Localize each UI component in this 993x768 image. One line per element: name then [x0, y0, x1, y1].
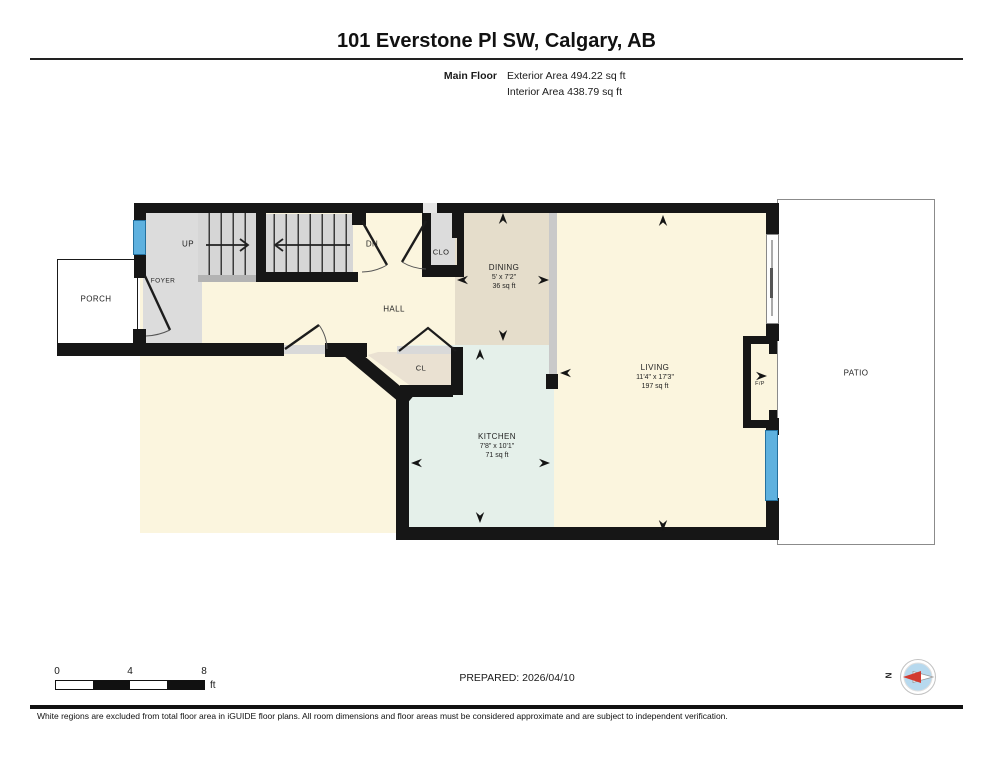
side-door-sill [284, 345, 325, 354]
stairs-up [198, 210, 256, 275]
floor-label: Main Floor [0, 70, 497, 82]
dining-area: 36 sq ft [489, 282, 519, 292]
fireplace-label: F/P [755, 381, 765, 387]
wall-kitchen-left [396, 390, 409, 537]
kitchen-area: 71 sq ft [478, 451, 516, 461]
top-wall-window [423, 203, 437, 213]
fireplace-stub-bottom [769, 410, 777, 420]
kitchen-label: KITCHEN 7'8" x 10'1" 71 sq ft [478, 432, 516, 461]
scale-bar-track [55, 680, 205, 690]
compass-north-label: N [884, 673, 893, 679]
scale-unit: ft [210, 680, 216, 691]
footer-divider [30, 705, 963, 709]
living-name: LIVING [636, 363, 674, 373]
kitchen-name: KITCHEN [478, 432, 516, 442]
dining-label: DINING 5' x 7'2" 36 sq ft [489, 263, 519, 292]
wall-bottom [396, 527, 779, 540]
dining-dims: 5' x 7'2" [489, 272, 519, 282]
dining-name: DINING [489, 263, 519, 273]
living-area: 197 sq ft [636, 382, 674, 392]
closet-cl-label: CL [416, 364, 426, 373]
title-divider [30, 58, 963, 60]
scale-seg-2 [93, 681, 130, 689]
wall-right-bottom [766, 498, 779, 540]
stairs-down [263, 214, 353, 272]
exterior-area-text: Exterior Area 494.22 sq ft [507, 70, 625, 82]
foyer-label: FOYER [151, 278, 175, 285]
dining-living-halfwall [549, 213, 557, 378]
patio-label: PATIO [844, 369, 869, 378]
scale-seg-3 [130, 681, 167, 689]
kitchen-dims: 7'8" x 10'1" [478, 441, 516, 451]
interior-area-text: Interior Area 438.79 sq ft [507, 86, 622, 98]
wall-stairs-bottom [263, 272, 358, 282]
hall-label: HALL [383, 305, 405, 314]
disclaimer-text: White regions are excluded from total fl… [37, 711, 728, 721]
closet-cl-door-sill [397, 346, 454, 354]
wall-stair-post [352, 210, 366, 225]
wall-clo-right-top [452, 210, 464, 238]
fireplace-stub-top [769, 344, 777, 354]
compass-icon [898, 655, 942, 699]
scale-seg-1 [56, 681, 93, 689]
scale-tick-8: 8 [201, 666, 207, 677]
wall-clo-bottom [422, 265, 464, 277]
closet-clo-floor [431, 212, 452, 268]
prepared-date: PREPARED: 2026/04/10 [407, 672, 627, 684]
wall-cl-bottom [400, 385, 453, 397]
porch-label: PORCH [81, 295, 112, 304]
wall-clo-left [422, 210, 431, 272]
patio-sliding-door-panel [770, 268, 773, 298]
window-right [765, 430, 778, 501]
wall-halfwall-post [546, 374, 558, 389]
wall-left-mid [134, 251, 146, 278]
stairs-up-label: UP [182, 240, 194, 249]
stairs-down-label: DN [366, 240, 378, 249]
scale-seg-4 [167, 681, 204, 689]
floor-plan-page: 101 Everstone Pl SW, Calgary, AB Main Fl… [0, 0, 993, 768]
stair-landing-edge [198, 275, 256, 282]
scale-tick-0: 0 [54, 666, 60, 677]
living-label: LIVING 11'4" x 17'3" 197 sq ft [636, 363, 674, 392]
window-left [133, 220, 146, 255]
wall-right-top [766, 203, 779, 234]
scale-tick-4: 4 [127, 666, 133, 677]
wall-bottom-left [57, 343, 284, 356]
living-dims: 11'4" x 17'3" [636, 372, 674, 382]
page-title: 101 Everstone Pl SW, Calgary, AB [0, 30, 993, 53]
closet-clo-label: CLO [433, 248, 450, 257]
